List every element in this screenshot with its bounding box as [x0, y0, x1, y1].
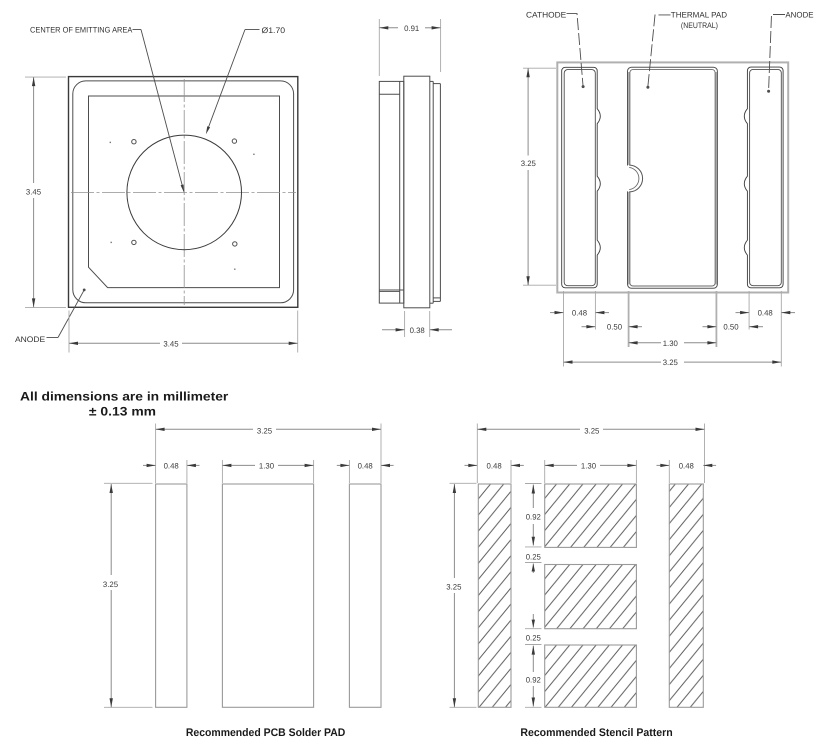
svg-text:0.48: 0.48: [358, 462, 373, 471]
svg-text:0.92: 0.92: [526, 513, 541, 522]
svg-text:0.50: 0.50: [607, 323, 623, 332]
svg-text:0.48: 0.48: [758, 309, 773, 318]
svg-text:0.92: 0.92: [526, 676, 541, 685]
svg-text:0.48: 0.48: [679, 462, 694, 471]
svg-text:3.25: 3.25: [663, 358, 679, 367]
svg-text:3.45: 3.45: [163, 339, 179, 348]
svg-text:3.25: 3.25: [103, 580, 119, 589]
svg-text:ANODE: ANODE: [15, 335, 45, 344]
svg-text:1.30: 1.30: [259, 462, 275, 471]
svg-text:(NEUTRAL): (NEUTRAL): [681, 21, 718, 30]
svg-text:3.25: 3.25: [521, 159, 537, 168]
svg-text:CENTER OF EMITTING AREA: CENTER OF EMITTING AREA: [30, 25, 133, 34]
svg-text:Recommended PCB Solder PAD: Recommended PCB Solder PAD: [186, 727, 346, 739]
svg-text:0.91: 0.91: [404, 24, 419, 33]
svg-text:0.48: 0.48: [164, 462, 179, 471]
svg-text:Recommended Stencil Pattern: Recommended Stencil Pattern: [520, 727, 673, 739]
svg-text:ANODE: ANODE: [785, 10, 813, 19]
svg-text:3.25: 3.25: [257, 427, 273, 436]
svg-text:0.48: 0.48: [487, 462, 502, 471]
svg-text:3.45: 3.45: [26, 187, 42, 196]
svg-text:0.25: 0.25: [526, 552, 542, 561]
svg-text:THERMAL PAD: THERMAL PAD: [671, 10, 728, 19]
svg-text:1.30: 1.30: [663, 339, 679, 348]
svg-text:0.25: 0.25: [526, 634, 542, 643]
svg-text:0.50: 0.50: [723, 323, 739, 332]
svg-text:0.38: 0.38: [410, 326, 425, 335]
svg-text:Ø1.70: Ø1.70: [262, 26, 286, 35]
svg-text:3.25: 3.25: [584, 427, 600, 436]
svg-text:1.30: 1.30: [581, 462, 597, 471]
svg-text:All dimensions are in millimet: All dimensions are in millimeter: [20, 390, 228, 404]
svg-text:3.25: 3.25: [446, 582, 462, 591]
svg-text:0.48: 0.48: [572, 309, 587, 318]
svg-text:CATHODE: CATHODE: [526, 10, 566, 19]
svg-text:± 0.13 mm: ± 0.13 mm: [89, 404, 156, 418]
